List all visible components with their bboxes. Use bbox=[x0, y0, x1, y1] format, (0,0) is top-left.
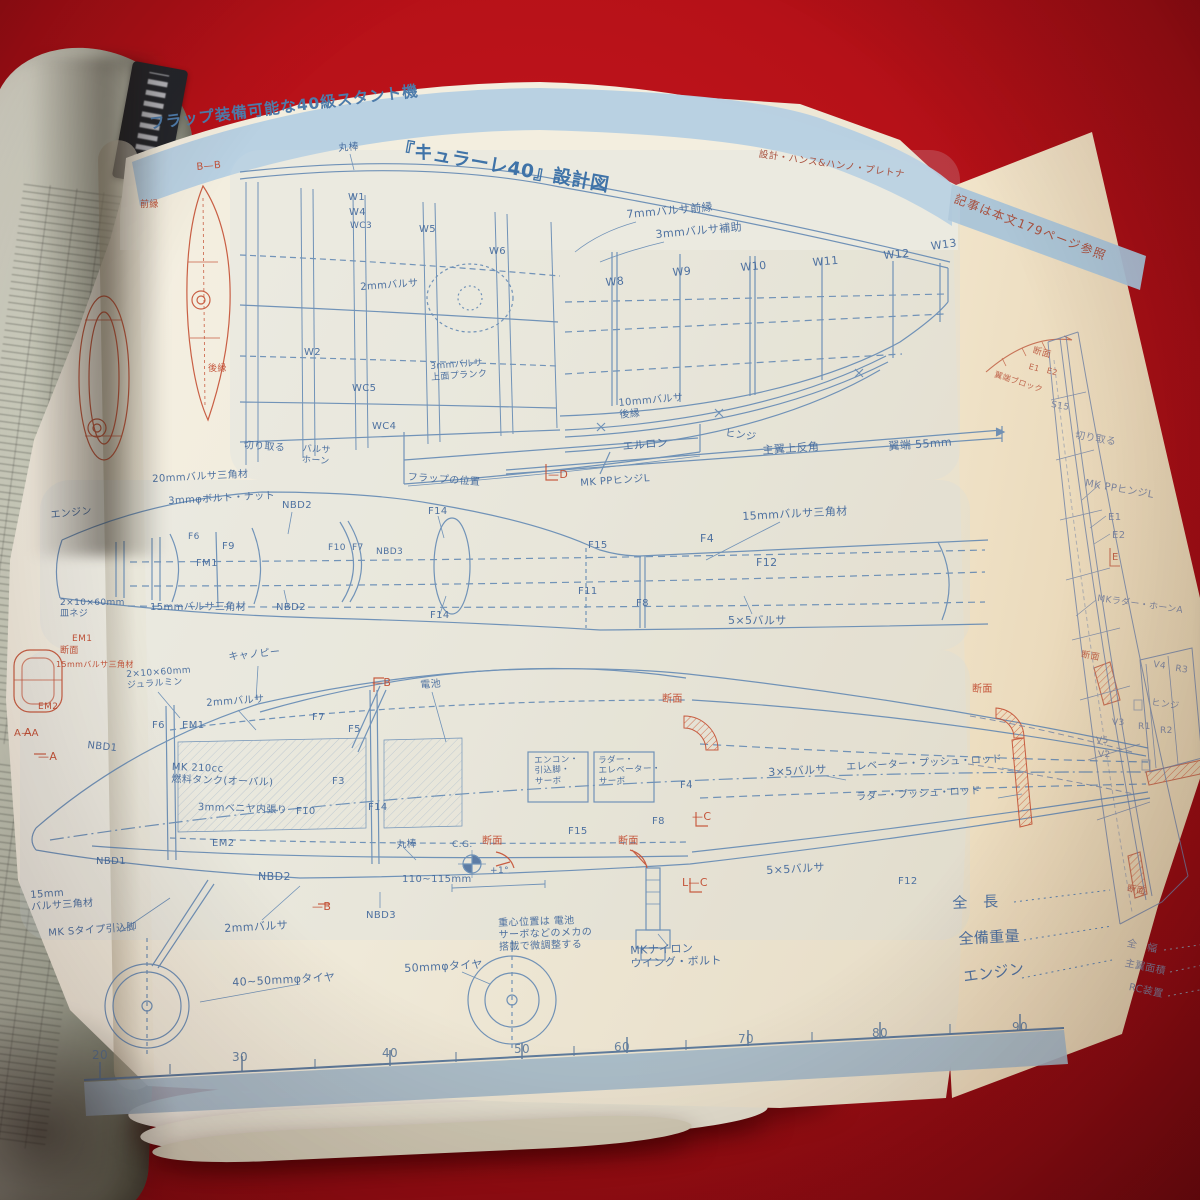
magazine-photo: 丸棒W1W4WC3W5W6W2WC5WC4切り取るバルサ ホーンフラップの位置2… bbox=[0, 0, 1200, 1200]
